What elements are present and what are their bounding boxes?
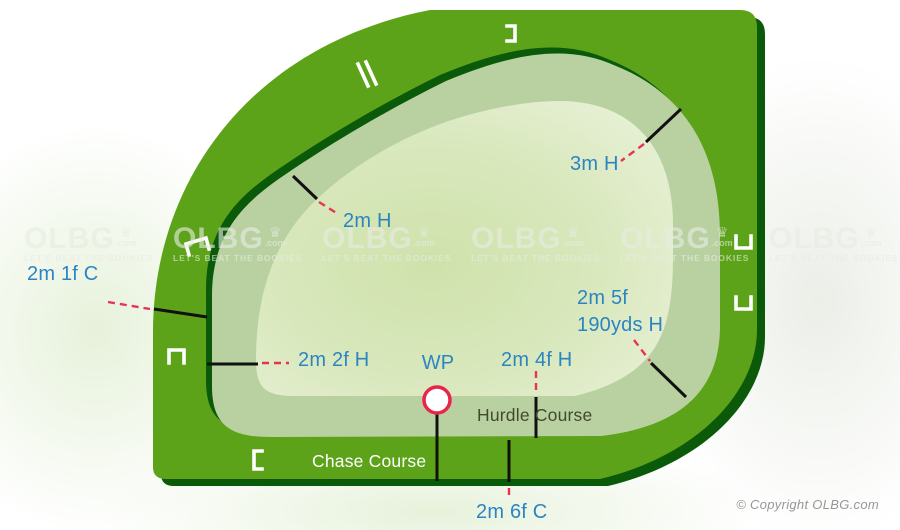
olbg-dotcom: .com <box>414 239 435 248</box>
olbg-watermark: OLBG♛.com LET'S BEAT THE BOOKIES <box>173 226 289 263</box>
distance-label-2m-6f-c: 2m 6f C <box>476 501 547 523</box>
olbg-watermark: OLBG♛.com LET'S BEAT THE BOOKIES <box>24 226 140 263</box>
olbg-dotcom: .com <box>563 239 584 248</box>
olbg-logo: OLBG <box>173 226 264 252</box>
distance-label-2m-5f-190yds-h: 2m 5f 190yds H <box>577 285 663 339</box>
distance-label-2m-5f-line2: 190yds H <box>577 312 663 339</box>
olbg-logo: OLBG <box>471 226 562 252</box>
winning-post-marker <box>424 387 450 413</box>
distance-label-2m-h: 2m H <box>343 210 392 232</box>
olbg-dotcom: .com <box>116 239 137 248</box>
racecourse-map: OLBG♛.com LET'S BEAT THE BOOKIES OLBG♛.c… <box>0 0 900 530</box>
olbg-tagline: LET'S BEAT THE BOOKIES <box>769 253 885 263</box>
copyright-text: © Copyright OLBG.com <box>736 497 879 512</box>
distance-label-2m-4f-h: 2m 4f H <box>501 349 572 371</box>
olbg-dotcom: .com <box>712 239 733 248</box>
distance-label-3m-h: 3m H <box>570 153 619 175</box>
hurdle-course-label: Hurdle Course <box>477 404 592 426</box>
olbg-tagline: LET'S BEAT THE BOOKIES <box>173 253 289 263</box>
olbg-watermark: OLBG♛.com LET'S BEAT THE BOOKIES <box>769 226 885 263</box>
distance-label-2m-2f-h: 2m 2f H <box>298 349 369 371</box>
olbg-tagline: LET'S BEAT THE BOOKIES <box>322 253 438 263</box>
olbg-tagline: LET'S BEAT THE BOOKIES <box>471 253 587 263</box>
olbg-tagline: LET'S BEAT THE BOOKIES <box>24 253 140 263</box>
olbg-dotcom: .com <box>861 239 882 248</box>
olbg-logo: OLBG <box>620 226 711 252</box>
chase-course-label: Chase Course <box>312 450 426 472</box>
distance-label-2m-5f-line1: 2m 5f <box>577 285 663 312</box>
winning-post-label: WP <box>421 352 455 374</box>
olbg-dotcom: .com <box>265 239 286 248</box>
course-svg <box>0 0 900 530</box>
olbg-logo: OLBG <box>769 226 860 252</box>
olbg-watermark: OLBG♛.com LET'S BEAT THE BOOKIES <box>620 226 736 263</box>
olbg-tagline: LET'S BEAT THE BOOKIES <box>620 253 736 263</box>
distance-label-2m-1f-c: 2m 1f C <box>27 263 98 285</box>
olbg-watermark: OLBG♛.com LET'S BEAT THE BOOKIES <box>471 226 587 263</box>
olbg-logo: OLBG <box>24 226 115 252</box>
